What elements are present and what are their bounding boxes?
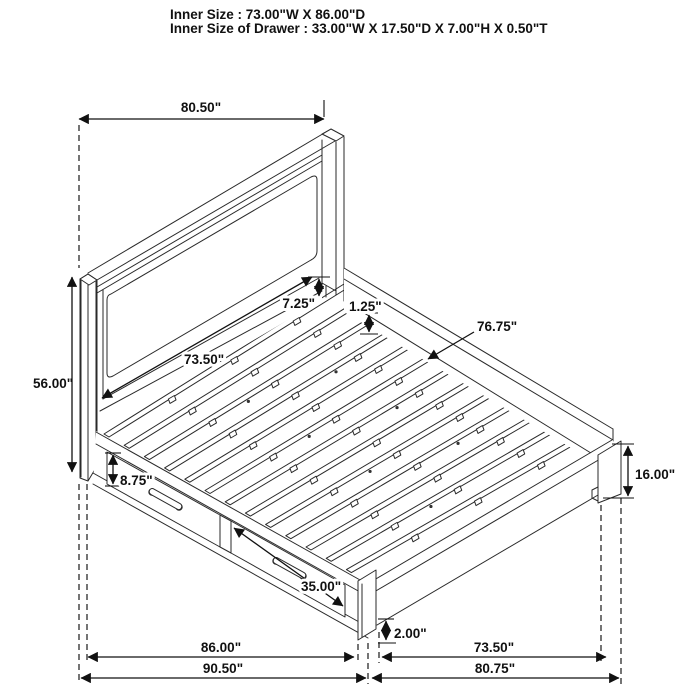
dim-headboard-inner-width: 73.50" <box>184 352 224 367</box>
dim-overall-depth: 90.50" <box>203 661 243 676</box>
slat-screw-hole <box>368 470 371 473</box>
dim-side-rail-length: 86.00" <box>201 640 241 655</box>
dim-headboard-width: 80.50" <box>181 100 221 115</box>
slat-screw-hole <box>456 442 459 445</box>
dim-floor-clearance: 2.00" <box>394 626 427 641</box>
title-inner-size: Inner Size : 73.00"W X 86.00"D <box>170 7 365 22</box>
title-drawer-size: Inner Size of Drawer : 33.00"W X 17.50"D… <box>170 21 548 36</box>
diagram-canvas: Inner Size : 73.00"W X 86.00"D Inner Siz… <box>0 0 700 700</box>
dim-footboard-inner-width: 73.50" <box>474 640 514 655</box>
drawer-divider <box>220 515 231 553</box>
slat-screw-hole <box>247 400 250 403</box>
dim-post-exposed: 7.25" <box>282 296 315 311</box>
slat-screw-hole <box>395 406 398 409</box>
dim-overall-width: 80.75" <box>475 661 515 676</box>
headboard-right-post <box>322 129 344 141</box>
bed-dimension-diagram: Inner Size : 73.00"W X 86.00"D Inner Siz… <box>0 0 700 700</box>
dim-slat-length: 76.75" <box>477 319 517 334</box>
dim-drawer-height: 8.75" <box>120 473 153 488</box>
slat-screw-hole <box>334 370 337 373</box>
dim-footboard-height: 16.00" <box>635 467 675 482</box>
side-rail-right <box>344 268 613 473</box>
dim-headboard-height: 56.00" <box>33 376 73 391</box>
slat-screw-hole <box>308 435 311 438</box>
slat <box>205 345 451 494</box>
dim-drawer-width: 35.00" <box>301 579 341 594</box>
dim-slat-thickness: 1.25" <box>349 299 382 314</box>
front-left-leg <box>358 570 376 640</box>
slat-screw-hole <box>429 505 432 508</box>
